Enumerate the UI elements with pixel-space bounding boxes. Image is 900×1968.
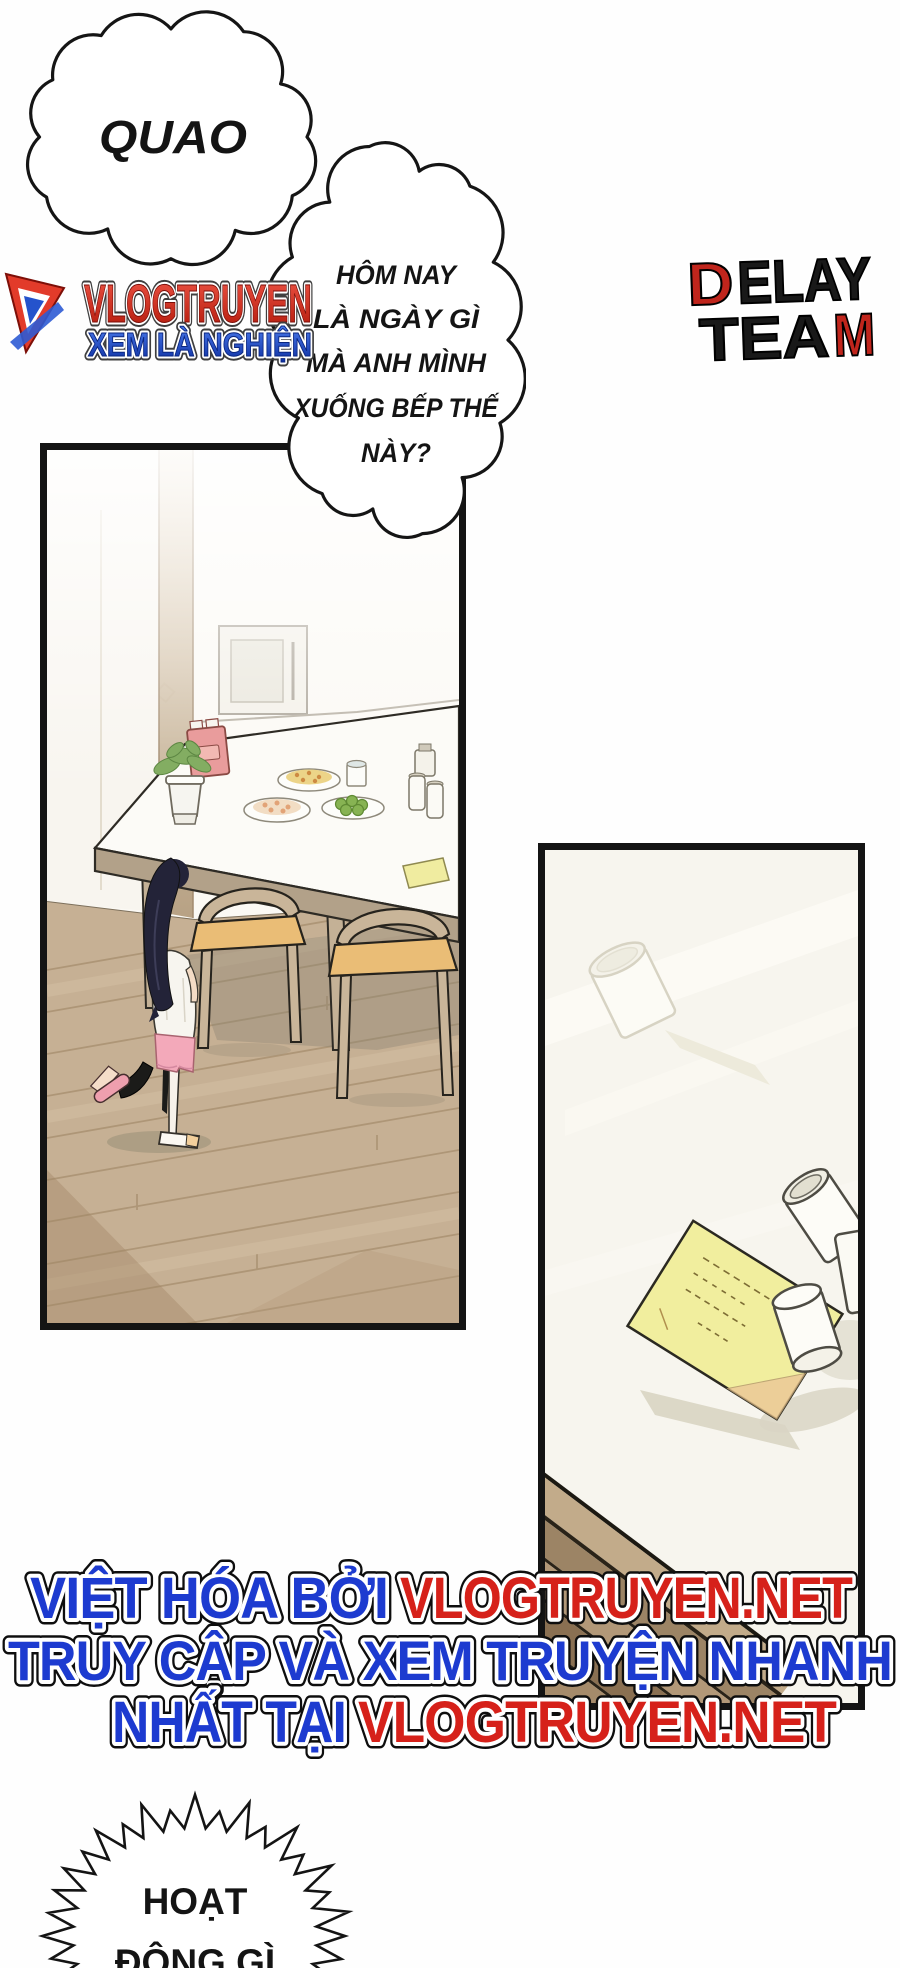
plate-food: [244, 798, 310, 822]
team-text: TEAM: [698, 301, 876, 370]
panel-kitchen: [40, 443, 466, 1330]
speech-line: NÀY?: [361, 437, 431, 468]
speech-line: XUỐNG BẾP THẾ: [292, 392, 500, 423]
kitchen-scene: [47, 450, 459, 1323]
brand-text: VLOGTRUYEN: [84, 274, 312, 334]
footer-row1: VIỆT HÓA BỞIVLOGTRUYEN.NET: [30, 1566, 852, 1631]
plate-noodles: [278, 769, 340, 791]
burst-line: ĐỘNG GÌ: [115, 1941, 275, 1968]
comic-page: QUAO HÔM NAY LÀ NGÀY GÌ MÀ ANH MÌNH XUỐN…: [0, 0, 900, 1968]
cup: [347, 761, 366, 787]
footer-row2: TRUY CẬP VÀ XEM TRUYỆN NHANH: [8, 1629, 892, 1692]
logo-triangle-icon: [6, 274, 64, 352]
burst-line: HOẠT: [143, 1881, 248, 1922]
delay-team-logo: DELAY DELAY TEAM TEAM: [675, 230, 885, 370]
brand-tagline: XEM LÀ NGHIỆN: [88, 326, 312, 363]
speech-line: HÔM NAY: [336, 259, 459, 290]
quao-text: QUAO: [99, 111, 247, 163]
footer-row3: NHẤT TẠIVLOGTRUYEN.NET: [112, 1690, 837, 1755]
vlogtruyen-logo: VLOGTRUYEN VLOGTRUYEN VLOGTRUYEN XEM LÀ …: [0, 262, 335, 367]
footer-credits: VIỆT HÓA BỞIVLOGTRUYEN.NET VIỆT HÓA BỞIV…: [0, 1538, 900, 1773]
burst-bubble: HOẠT ĐỘNG GÌ: [10, 1786, 390, 1968]
speech-line: LÀ NGÀY GÌ: [313, 303, 481, 334]
